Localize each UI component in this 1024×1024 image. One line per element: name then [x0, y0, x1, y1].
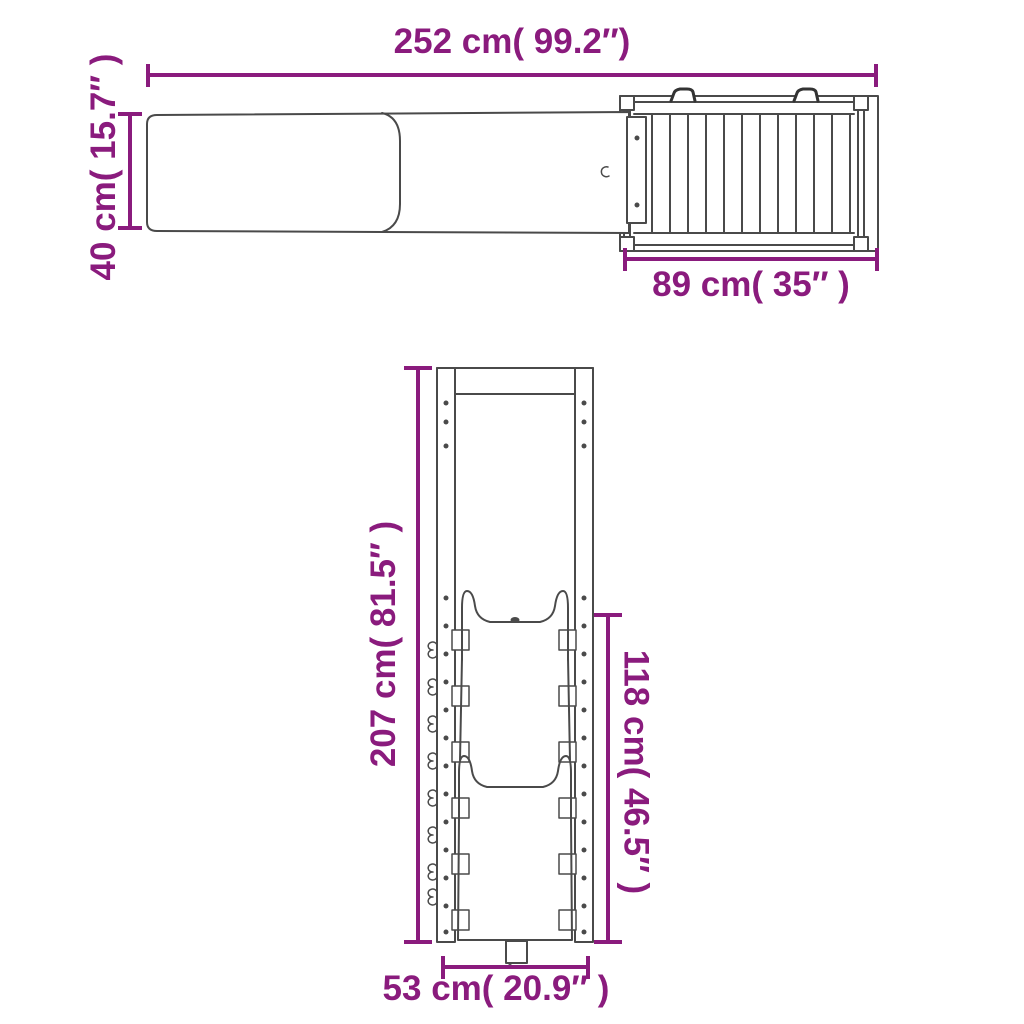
slide-upper-edge: [462, 591, 568, 660]
technical-drawing: [147, 89, 878, 968]
ladder-rungs: [452, 630, 576, 930]
dim-label-overall-height: 207 cm( 81.5″ ): [365, 521, 404, 767]
diagram-drawing: [0, 0, 1024, 1024]
dim-label-slide-height: 118 cm( 46.5″ ): [616, 650, 655, 894]
dim-label-ramp-width: 40 cm( 15.7″ ): [85, 54, 124, 281]
dim-line-overall-width: [148, 64, 876, 87]
slide-lower-walls: [458, 818, 572, 940]
slide-screw-dot: [511, 617, 520, 623]
dim-label-base-width: 53 cm( 20.9″ ): [356, 970, 636, 1009]
front-view-frame: [428, 368, 593, 968]
plate-screw-top: [635, 136, 640, 141]
top-view-ramp: [147, 112, 646, 233]
platform-handle-right: [794, 89, 818, 101]
ramp-outline: [147, 112, 629, 233]
frame-top-board: [437, 368, 593, 394]
plate-screw-bottom: [635, 203, 640, 208]
top-view-platform: [620, 89, 878, 251]
platform-outline: [620, 96, 878, 251]
product-dimension-diagram: 252 cm( 99.2″) 40 cm( 15.7″ ) 89 cm( 35″…: [0, 0, 1024, 1024]
dim-label-overall-width: 252 cm( 99.2″): [148, 23, 876, 62]
center-foot: [506, 941, 527, 963]
side-clips: [428, 642, 437, 905]
slide-lower-edge: [459, 756, 571, 818]
dim-label-platform-depth: 89 cm( 35″ ): [625, 266, 877, 305]
slide-upper-walls: [460, 658, 570, 760]
slide-front-view: [458, 591, 572, 940]
platform-handle-left: [671, 89, 695, 101]
